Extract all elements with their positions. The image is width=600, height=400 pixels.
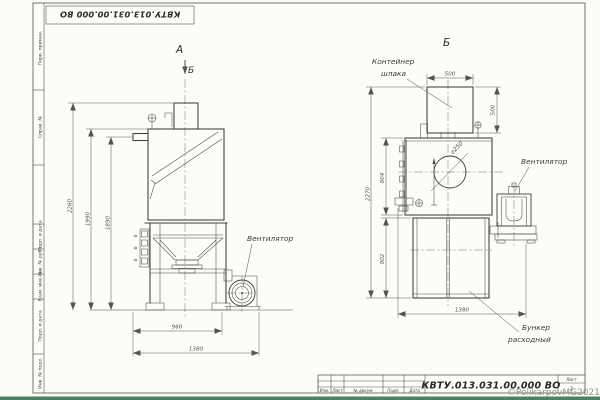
view-b-machine [395,87,492,298]
dim-1990: 1990 [86,211,92,226]
sheet-frame: Перв. примен. Справ. № Подп. и дата Инв.… [33,3,585,393]
dim-500-h: 500 [491,104,497,115]
dim-804: 804 [380,172,386,183]
view-b-hopper-label-2: расходный [507,335,551,344]
view-b-hopper-label-1: Бункер [522,323,550,332]
drawing-canvas: Перв. примен. Справ. № Подп. и дата Инв.… [0,0,600,400]
tb-col-doc: № докум. [352,388,373,393]
watermark: ©PolikarpovMG2021 [507,388,600,398]
view-b-title: Б [443,37,450,49]
dim-1380-a: 1380 [189,347,204,353]
dim-500-w: 500 [445,72,456,78]
tb-col-izm: Изм. [320,388,330,393]
margin-cell-podp2: Подп. и дата [38,310,44,341]
view-a-fan-label: Вентилятор [247,234,294,243]
view-a: А Б [68,44,294,356]
view-b: Б [366,37,568,344]
view-b-container-label-2: шлака [381,69,406,78]
tb-col-podp: Подп. [387,388,399,393]
view-a-machine [133,103,230,310]
dim-960: 960 [172,325,183,331]
dim-1380-b: 1380 [455,308,470,314]
view-b-container-label-1: Контейнер [372,57,415,66]
view-b-fan [490,183,537,243]
margin-cell-inv-podl: Инв. № подл. [38,357,44,389]
tb-col-list: Лист [331,388,343,393]
view-a-section-mark: Б [188,66,194,76]
dim-1890: 1890 [106,215,112,230]
margin-cell-sprav: Справ. № [38,116,44,139]
drawing-sheet: Перв. примен. Справ. № Подп. и дата Инв.… [0,0,600,400]
doc-number-top: КВТУ.013.031.00.000 ВО [60,10,180,20]
view-a-fan [224,270,261,310]
dim-902: 902 [380,253,386,264]
view-a-title: А [175,44,183,56]
margin-cell-perv: Перв. примен. [38,31,44,66]
dim-2260: 2260 [68,198,74,213]
view-b-dimensions: 500 500 2270 804 902 1380 [366,72,527,319]
margin-cell-vzam: Взам. инв. № [38,270,44,301]
view-a-dimensions: 2260 1990 1890 960 1380 [68,103,260,356]
tb-col-date: Дата [408,388,420,393]
tb-sheet-label: Лист [565,377,577,382]
dim-2270: 2270 [366,186,372,201]
dim-hole-250: ⌀250 [449,140,465,156]
view-b-fan-label: Вентилятор [521,157,568,166]
